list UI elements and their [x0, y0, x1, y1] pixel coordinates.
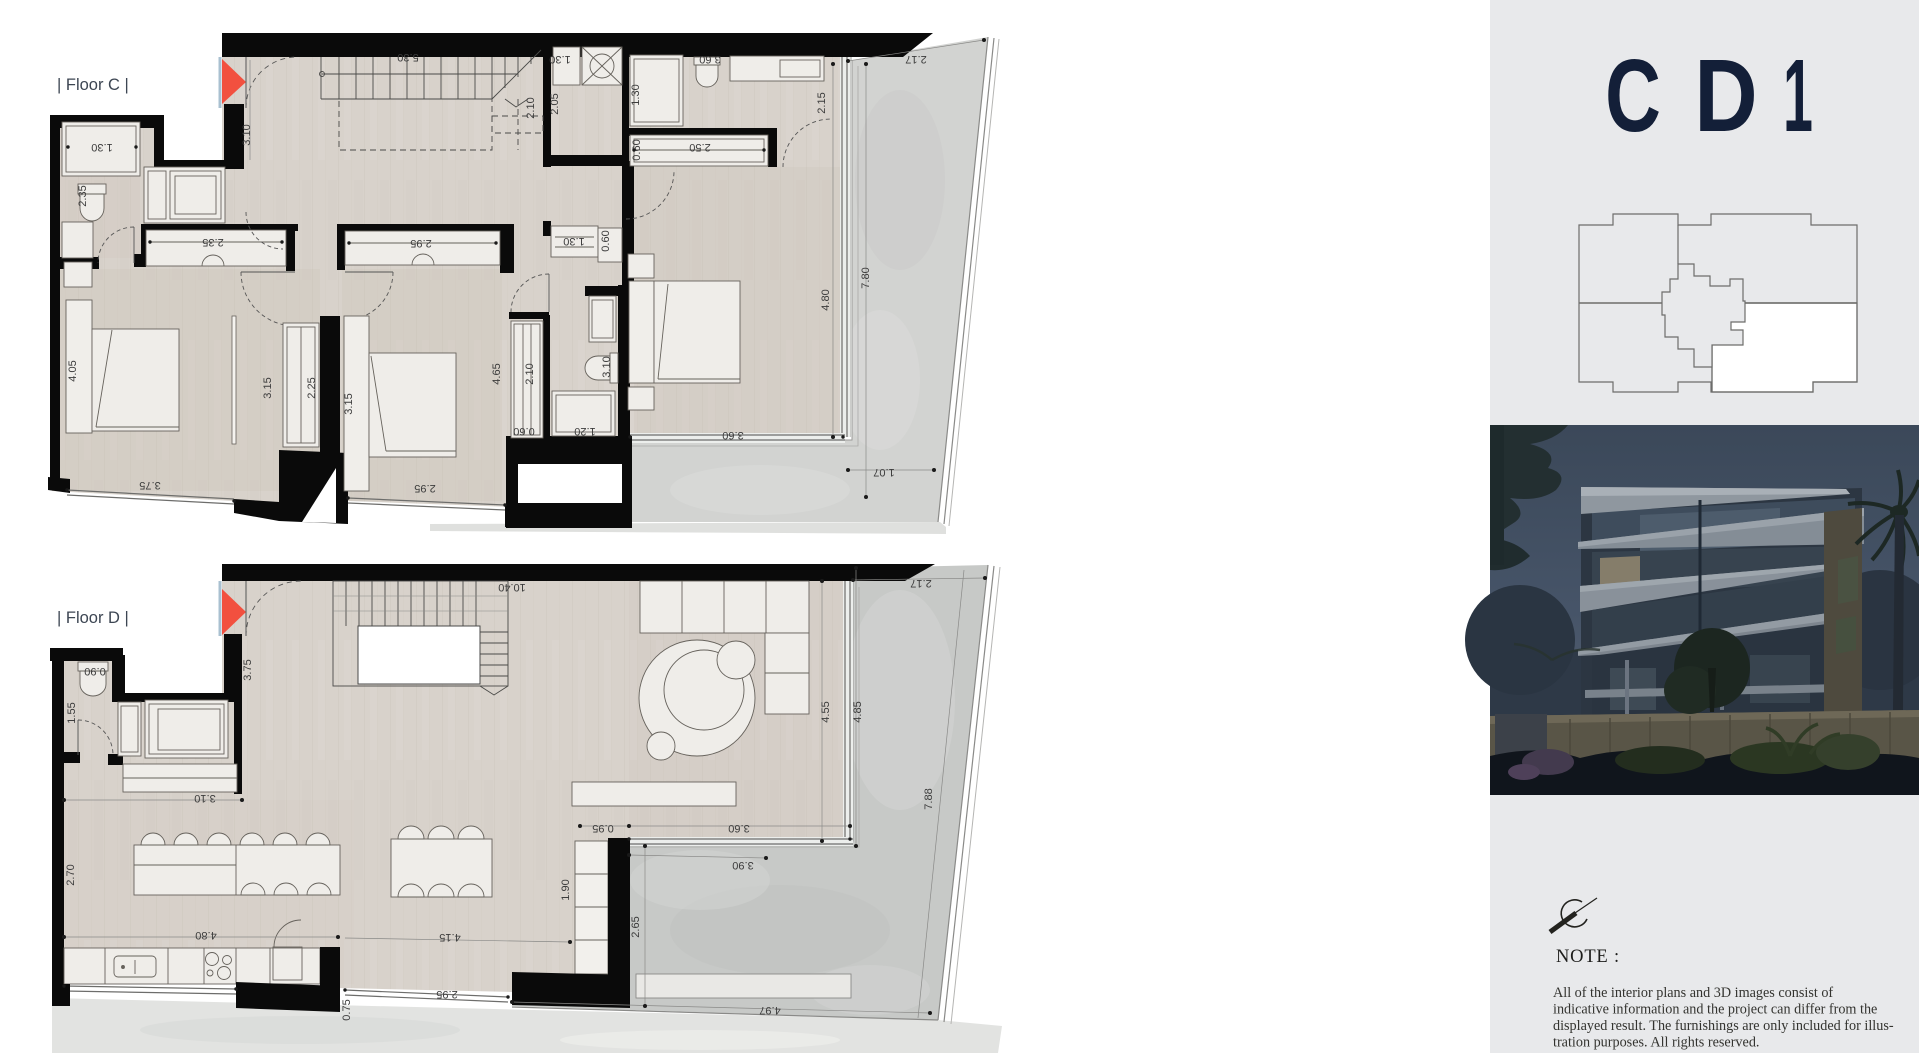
svg-text:2.95: 2.95 [436, 988, 457, 1000]
svg-text:3.75: 3.75 [242, 659, 254, 680]
svg-text:3.90: 3.90 [732, 859, 753, 871]
svg-text:4.80: 4.80 [195, 929, 216, 941]
svg-text:2.05: 2.05 [549, 93, 561, 114]
svg-text:3.60: 3.60 [728, 822, 749, 834]
svg-text:NOTE :: NOTE : [1556, 947, 1620, 967]
svg-text:1.30: 1.30 [630, 84, 642, 105]
svg-text:3.10: 3.10 [601, 356, 613, 377]
svg-text:5.30: 5.30 [397, 51, 418, 63]
svg-text:3.75: 3.75 [139, 479, 160, 491]
svg-text:D: D [1694, 38, 1757, 153]
svg-text:displayed result. The furnishi: displayed result. The furnishings are on… [1553, 1018, 1894, 1034]
svg-text:2.35: 2.35 [77, 185, 89, 206]
svg-text:2.10: 2.10 [525, 97, 537, 118]
svg-text:2.95: 2.95 [410, 237, 431, 249]
svg-text:4.05: 4.05 [67, 360, 79, 381]
svg-text:3.15: 3.15 [262, 377, 274, 398]
svg-text:4.55: 4.55 [820, 701, 832, 722]
svg-text:| Floor C |: | Floor C | [57, 76, 129, 94]
svg-text:4.65: 4.65 [491, 363, 503, 384]
svg-text:7.88: 7.88 [923, 788, 935, 809]
svg-text:0.90: 0.90 [84, 665, 105, 677]
svg-text:0.60: 0.60 [600, 230, 612, 251]
svg-text:0.95: 0.95 [592, 822, 613, 834]
svg-text:10.40: 10.40 [498, 581, 526, 593]
svg-text:2.17: 2.17 [905, 53, 926, 65]
svg-text:2.17: 2.17 [910, 577, 931, 589]
svg-text:1.90: 1.90 [560, 879, 572, 900]
svg-text:All of the interior plans and: All of the interior plans and 3D images … [1553, 985, 1833, 1001]
svg-text:2.95: 2.95 [414, 482, 435, 494]
svg-text:3.60: 3.60 [699, 53, 720, 65]
svg-text:3.15: 3.15 [343, 393, 355, 414]
svg-text:1.55: 1.55 [66, 702, 78, 723]
svg-text:4.85: 4.85 [852, 701, 864, 722]
svg-text:indicative information and the: indicative information and the project c… [1553, 1002, 1877, 1018]
svg-text:1.30: 1.30 [91, 141, 112, 153]
svg-text:| Floor D |: | Floor D | [57, 609, 129, 627]
svg-text:2.65: 2.65 [630, 916, 642, 937]
svg-text:tration purposes. All rights r: tration purposes. All rights reserved. [1553, 1035, 1759, 1051]
svg-text:2.25: 2.25 [306, 377, 318, 398]
svg-text:3.10: 3.10 [194, 792, 215, 804]
svg-text:1.07: 1.07 [873, 466, 894, 478]
svg-text:7.80: 7.80 [860, 267, 872, 288]
svg-text:4.15: 4.15 [439, 931, 460, 943]
svg-text:1: 1 [1783, 39, 1813, 153]
svg-text:1.20: 1.20 [574, 425, 595, 437]
svg-text:C: C [1605, 39, 1661, 153]
svg-text:4.80: 4.80 [820, 289, 832, 310]
svg-text:2.50: 2.50 [689, 141, 710, 153]
svg-text:0.60: 0.60 [513, 425, 534, 437]
svg-text:3.10: 3.10 [241, 124, 253, 145]
svg-text:0.75: 0.75 [341, 999, 353, 1020]
svg-text:2.10: 2.10 [524, 363, 536, 384]
svg-text:3.60: 3.60 [722, 429, 743, 441]
svg-text:4.97: 4.97 [759, 1004, 780, 1016]
svg-text:2.35: 2.35 [202, 236, 223, 248]
svg-text:2.70: 2.70 [65, 864, 77, 885]
svg-text:1.30: 1.30 [563, 235, 584, 247]
svg-text:2.15: 2.15 [816, 92, 828, 113]
svg-text:1.30: 1.30 [549, 53, 570, 65]
